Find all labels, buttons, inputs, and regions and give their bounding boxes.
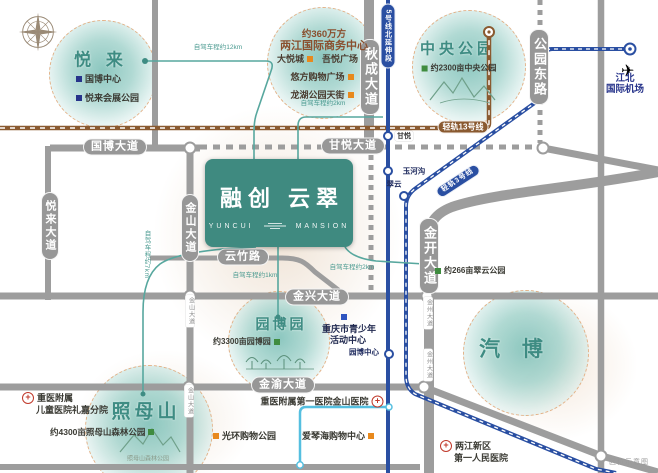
- orange-square-icon: [348, 74, 354, 80]
- map-footnote: 区位示意图: [609, 457, 649, 467]
- road-pill-jinyu-avenue: 金渝大道: [251, 377, 315, 394]
- road-pill-jinxing-avenue: 金兴大道: [285, 289, 349, 306]
- green-square-icon: [422, 65, 428, 71]
- rail-line-13: [0, 27, 494, 128]
- navy-square-icon: [76, 76, 82, 82]
- zone-yuelai-items: 国博中心 悦来会展公园: [76, 72, 139, 104]
- orange-square-icon: [307, 56, 313, 62]
- road-pill-yunzhu-road: 云竹路: [217, 249, 269, 266]
- orange-square-icon: [213, 433, 219, 439]
- distance-label-yuanbo: 自驾车程约1km: [233, 269, 278, 279]
- green-square-icon: [274, 339, 280, 345]
- poi-ring-mall: 光环购物公园: [213, 429, 276, 442]
- zone-business-title2: 两江国际商务中心: [280, 37, 368, 53]
- poi-aegean-mall: 爱琴海购物中心: [302, 429, 374, 442]
- poi-joy-city: 大悦城: [277, 52, 304, 65]
- metro-line-5-tag: 5号线北延伸段: [381, 4, 396, 69]
- airport-label-2: 国际机场: [606, 81, 644, 95]
- orange-square-icon: [348, 92, 354, 98]
- poi-children-hospital-line2: 儿童医院礼嘉分院: [36, 403, 108, 416]
- zhaomushan-art-caption: 照母山森林公园: [127, 454, 169, 463]
- red-cross-icon: [22, 392, 34, 404]
- road-tag-jinzhou-avenue: 金州大道: [424, 297, 433, 329]
- poi-ufun-mall: 悠方购物广场: [290, 70, 344, 83]
- road-pill-guobo-avenue: 国博大道: [83, 139, 147, 156]
- zone-business-items: 大悦城 吾悦广场 悠方购物广场 龙湖公园天街: [277, 52, 367, 101]
- poi-youth-center-line2: 活动中心: [330, 333, 366, 346]
- poi-zhaomushan-forest-park: 约4300亩照母山森林公园: [50, 426, 154, 438]
- compass-icon: [14, 8, 62, 56]
- poi-central-park-area: 约2300亩中央公园: [422, 63, 497, 74]
- green-square-icon: [148, 429, 154, 435]
- station-icon-cuiyun: [399, 191, 409, 201]
- road-pill-gongyuan-east-road: 公园东路: [529, 29, 549, 105]
- road-tag-jinshan-avenue: 金山大道: [185, 385, 194, 417]
- orange-square-icon: [368, 433, 374, 439]
- road-pill-jinkai-avenue: 金开大道: [419, 218, 439, 294]
- green-square-icon: [435, 268, 441, 274]
- station-icon-yuhegou: [383, 166, 393, 176]
- project-card: 融创 云翠 YUNCUI MANSION: [205, 159, 353, 247]
- distance-label-jinkai: 自驾车程约2km: [330, 261, 375, 271]
- poi-yuanboyuan-area: 约3300亩园博园: [213, 336, 280, 347]
- central-park-mountain-art: [430, 78, 495, 103]
- poi-jinshan-hospital: 重医附属第一医院金山医院: [260, 395, 383, 408]
- station-icon-yuanbo-center: [384, 349, 394, 359]
- jinkai-avenue-road: [429, 172, 658, 473]
- station-icon-ganyue: [383, 131, 393, 141]
- cloud-divider-icon: [261, 222, 289, 230]
- red-cross-icon: [372, 395, 384, 407]
- distance-label-yuelai: 自驾车程约12km: [194, 41, 242, 51]
- distance-label-zhaomu: 自驾车程约7km: [141, 230, 151, 279]
- road-tag-jinshan-avenue: 金山大道: [186, 295, 195, 327]
- poi-wuyue-plaza: 吾悦广场: [322, 52, 358, 65]
- station-label-yuanbo-center: 园博中心: [349, 347, 379, 358]
- blue-square-icon: [341, 314, 347, 320]
- project-en-left: YUNCUI: [209, 223, 254, 230]
- poi-yuelai-expo-park: 悦来会展公园: [85, 91, 139, 104]
- road-tag-jinzhou-avenue: 金州大道: [424, 349, 433, 381]
- road-pill-yuelai-avenue: 悦来大道: [41, 192, 59, 260]
- poi-cuiyun-park: 约266亩翠云公园: [435, 265, 505, 276]
- road-pill-ganyue-avenue: 甘悦大道: [321, 138, 385, 155]
- yuanboyuan-trees-art: [246, 356, 314, 370]
- project-name: 融创 云翠: [205, 181, 353, 213]
- poi-guobo-center: 国博中心: [85, 72, 121, 85]
- station-label-cuiyun: 翠云: [387, 179, 402, 190]
- road-pill-jinshan-avenue: 金山大道: [181, 194, 199, 262]
- location-map: 悦 来 国博中心 悦来会展公园 约360万方 两江国际商务中心 大悦城 吾悦广场…: [0, 0, 658, 473]
- station-label-yuhegou: 玉河沟: [403, 166, 426, 177]
- red-cross-icon: [440, 440, 452, 452]
- project-en-right: MANSION: [296, 223, 350, 230]
- rail-line-13-tag: 轻轨13号线: [438, 121, 489, 134]
- distance-label-business: 自驾车程约2km: [301, 97, 346, 107]
- poi-people-hospital-line2: 第一人民医院: [454, 451, 508, 464]
- station-label-ganyue: 甘悦: [395, 131, 413, 141]
- navy-square-icon: [76, 95, 82, 101]
